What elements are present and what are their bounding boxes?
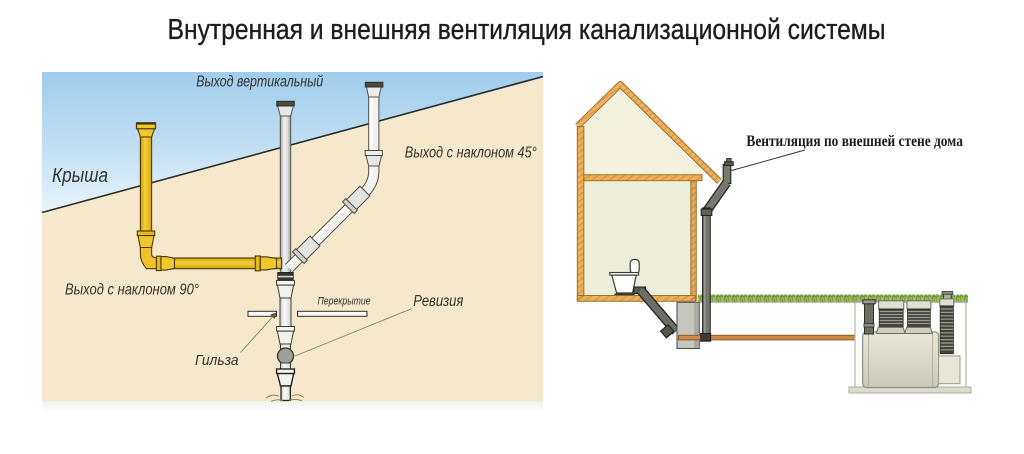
svg-text:Выход с наклоном 45°: Выход с наклоном 45°: [405, 145, 537, 162]
svg-text:Перекрытие: Перекрытие: [318, 296, 371, 308]
svg-text:Внутренная и внешняя вентиляци: Внутренная и внешняя вентиляция канализа…: [168, 14, 886, 46]
svg-text:Выход с наклоном 90°: Выход с наклоном 90°: [65, 282, 199, 299]
svg-text:Ревизия: Ревизия: [413, 293, 463, 310]
svg-text:Гильза: Гильза: [195, 352, 239, 369]
svg-text:Вентиляция по внешней стене до: Вентиляция по внешней стене дома: [746, 133, 963, 150]
svg-text:Выход вертикальный: Выход вертикальный: [196, 74, 323, 91]
svg-text:Крыша: Крыша: [52, 164, 108, 187]
